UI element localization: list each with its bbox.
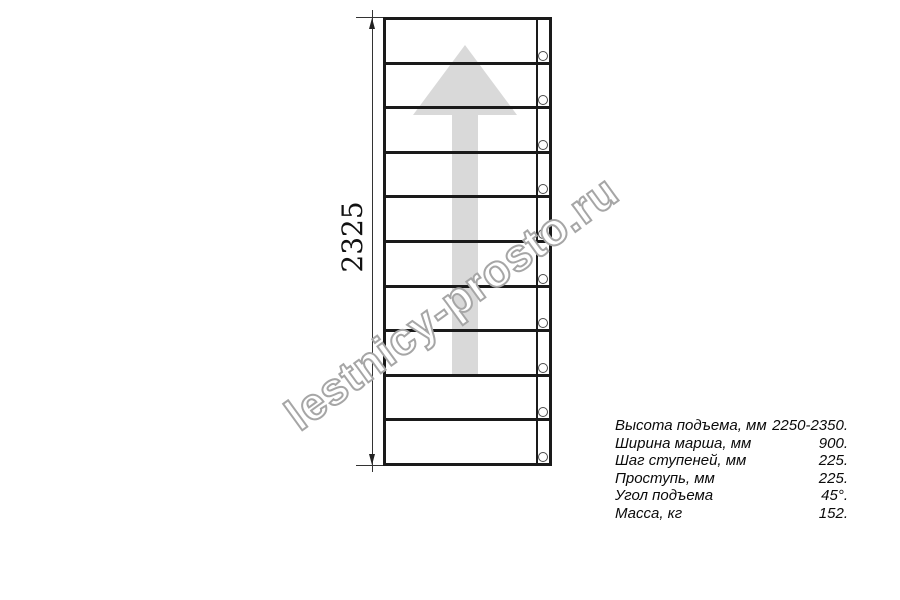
height-dimension-label: 2325 — [322, 207, 382, 267]
spec-label: Шаг ступеней, мм — [615, 452, 746, 470]
spec-value: 225. — [819, 470, 848, 488]
spec-value: 225. — [819, 452, 848, 470]
fastener-circle — [538, 140, 548, 150]
step-row — [386, 421, 549, 463]
spec-value: 900. — [819, 435, 848, 453]
fastener-circle — [538, 51, 548, 61]
spec-label: Проступь, мм — [615, 470, 715, 488]
spec-value: 152. — [819, 505, 848, 523]
step-row — [386, 109, 549, 154]
spec-label: Высота подъема, мм — [615, 417, 767, 435]
spec-value: 45°. — [821, 487, 848, 505]
spec-row: Проступь, мм 225. — [615, 470, 848, 488]
spec-row: Масса, кг 152. — [615, 505, 848, 523]
fastener-circle — [538, 184, 548, 194]
spec-label: Угол подъема — [615, 487, 713, 505]
drawing-canvas: 2325 lestnicy-prosto.ru Высота подъема, … — [0, 0, 900, 600]
fastener-circle — [538, 95, 548, 105]
step-row — [386, 65, 549, 110]
spec-row: Шаг ступеней, мм 225. — [615, 452, 848, 470]
step-row — [386, 377, 549, 422]
fastener-circle — [538, 407, 548, 417]
dimension-arrowhead-up-icon — [369, 18, 375, 29]
fastener-circle — [538, 363, 548, 373]
spec-label: Масса, кг — [615, 505, 682, 523]
dimension-arrowhead-down-icon — [369, 454, 375, 465]
extension-line-bottom — [356, 465, 383, 466]
spec-label: Ширина марша, мм — [615, 435, 751, 453]
spec-table: Высота подъема, мм 2250-2350. Ширина мар… — [615, 417, 848, 523]
spec-row: Ширина марша, мм 900. — [615, 435, 848, 453]
spec-row: Угол подъема 45°. — [615, 487, 848, 505]
step-row — [386, 154, 549, 199]
spec-value: 2250-2350. — [772, 417, 848, 435]
fastener-circle — [538, 318, 548, 328]
fastener-circle — [538, 452, 548, 462]
spec-row: Высота подъема, мм 2250-2350. — [615, 417, 848, 435]
step-row — [386, 20, 549, 65]
